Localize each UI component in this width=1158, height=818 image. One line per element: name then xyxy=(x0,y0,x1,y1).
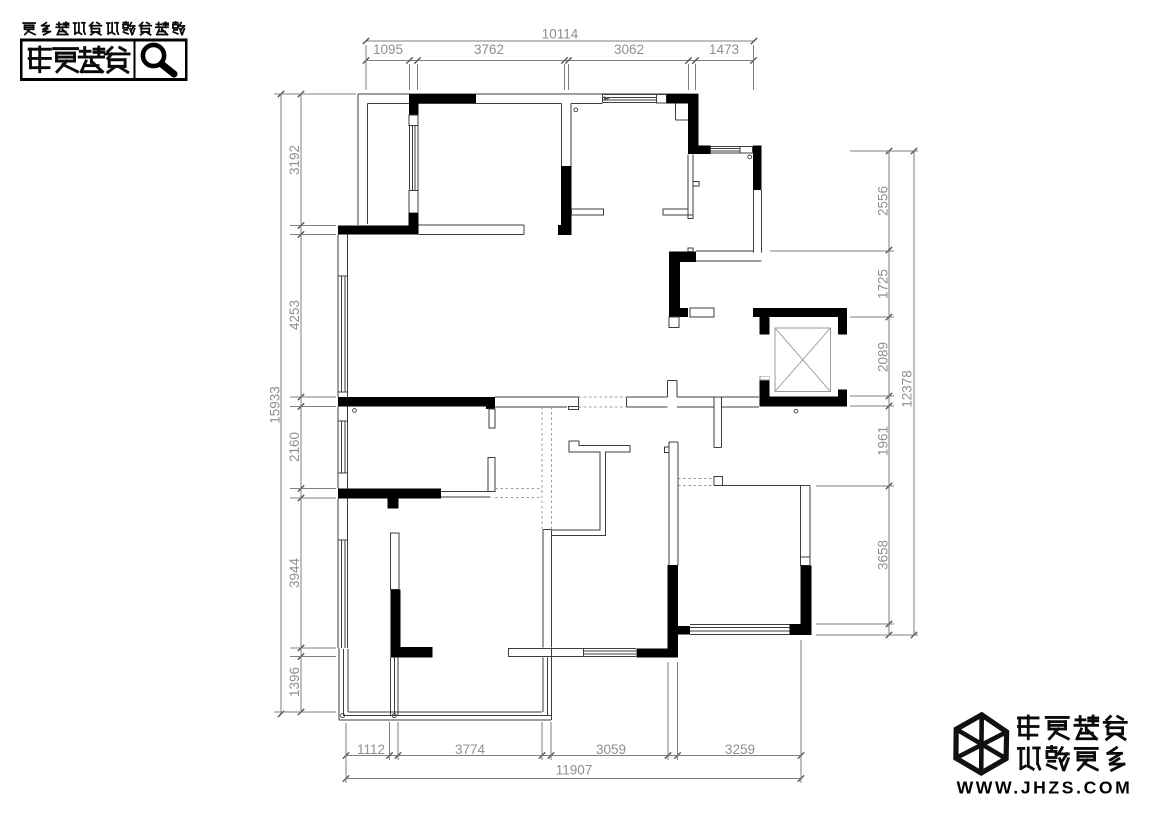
svg-text:15933: 15933 xyxy=(268,386,283,424)
svg-text:1112: 1112 xyxy=(357,742,385,757)
svg-text:3062: 3062 xyxy=(614,42,644,57)
svg-text:2160: 2160 xyxy=(287,432,302,462)
svg-text:3762: 3762 xyxy=(474,42,504,57)
svg-text:12378: 12378 xyxy=(900,370,915,408)
svg-text:1095: 1095 xyxy=(373,42,403,57)
svg-text:WWW.JHZS.COM: WWW.JHZS.COM xyxy=(957,778,1133,798)
svg-text:3192: 3192 xyxy=(287,145,302,175)
svg-text:3259: 3259 xyxy=(725,742,755,757)
svg-text:1725: 1725 xyxy=(876,269,891,299)
svg-text:3774: 3774 xyxy=(455,742,486,757)
svg-text:1961: 1961 xyxy=(876,426,891,456)
svg-text:11907: 11907 xyxy=(556,763,593,778)
svg-text:2089: 2089 xyxy=(876,342,891,372)
svg-text:2556: 2556 xyxy=(876,186,891,216)
svg-text:4253: 4253 xyxy=(287,300,302,330)
svg-text:3658: 3658 xyxy=(876,540,891,570)
svg-text:1473: 1473 xyxy=(709,42,739,57)
svg-text:3059: 3059 xyxy=(596,742,626,757)
svg-text:1396: 1396 xyxy=(287,667,302,697)
svg-text:3944: 3944 xyxy=(287,557,302,588)
svg-text:10114: 10114 xyxy=(542,27,579,42)
